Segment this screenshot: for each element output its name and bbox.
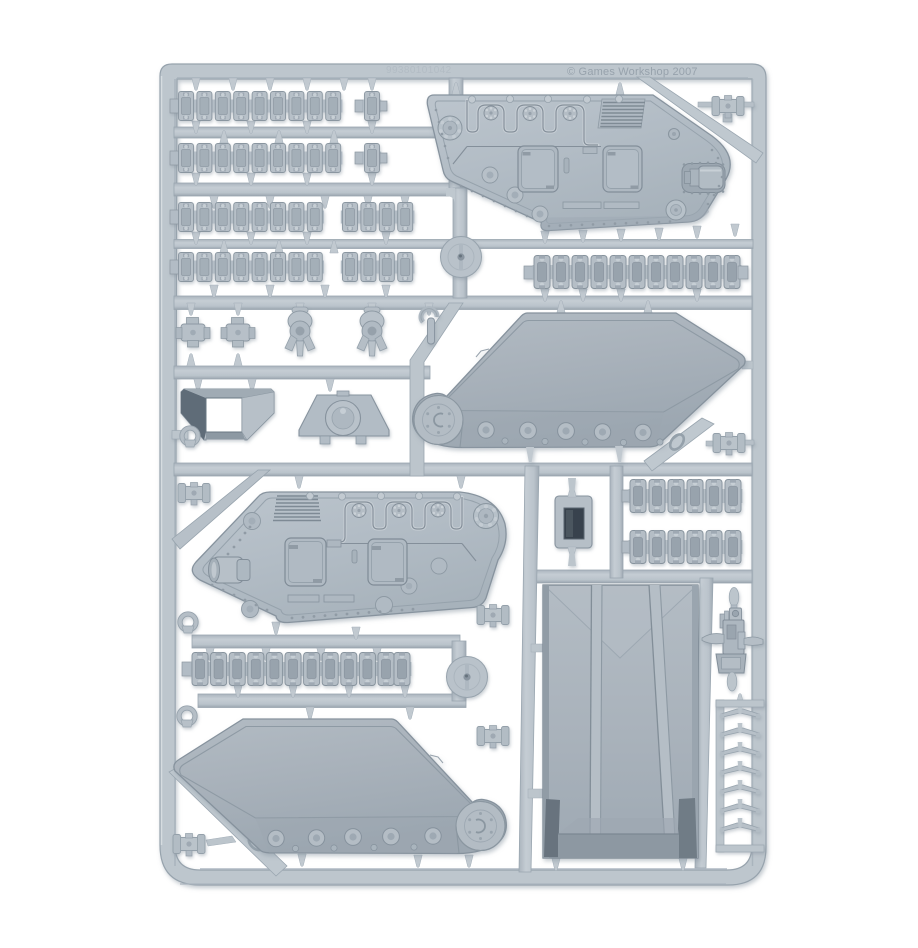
svg-text:© Games Workshop 2007: © Games Workshop 2007	[567, 66, 698, 78]
svg-text:99380101042: 99380101042	[386, 65, 452, 76]
